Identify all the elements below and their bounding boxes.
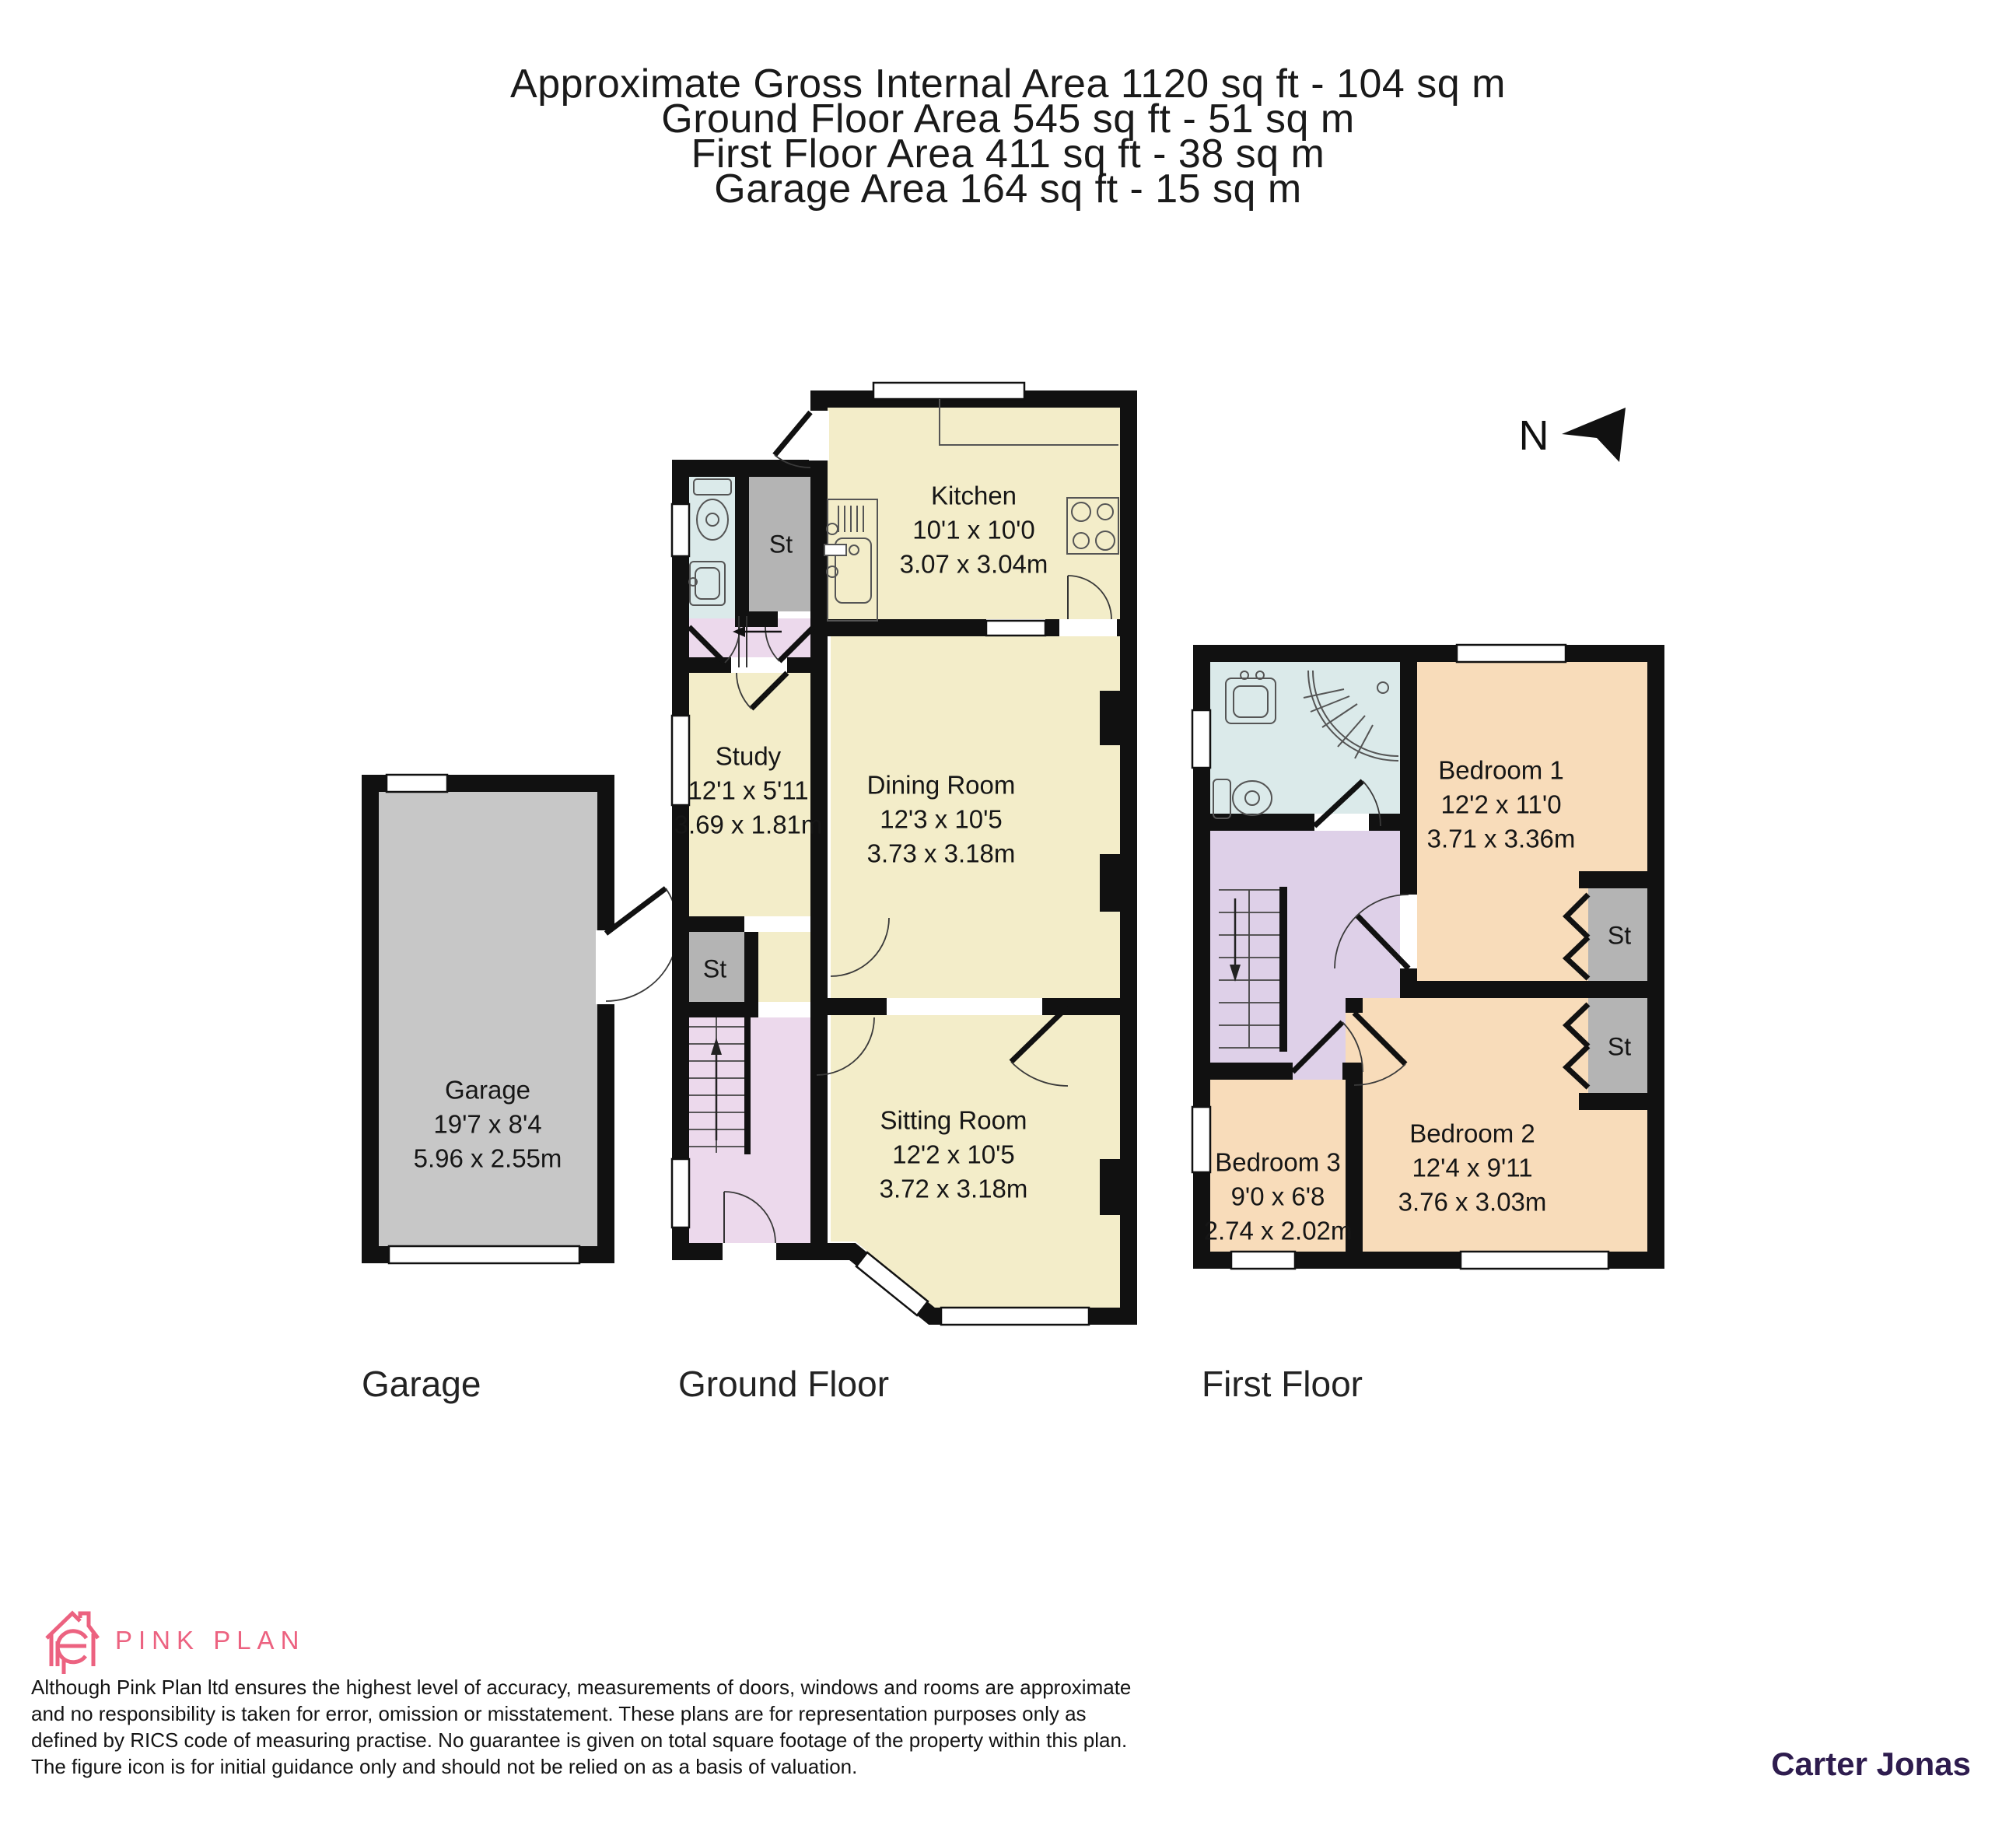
floorplan-canvas: Garage 19'7 x 8'4 5.96 x 2.55m xyxy=(0,0,2016,1828)
storage-label: St xyxy=(1608,1032,1631,1060)
bedroom3-name: Bedroom 3 xyxy=(1215,1148,1340,1177)
bedroom1-window xyxy=(1457,645,1566,662)
study-name: Study xyxy=(716,742,782,771)
chimney-pillar xyxy=(1100,1159,1120,1215)
area-summary: Approximate Gross Internal Area 1120 sq … xyxy=(0,67,2016,207)
stair-hall-area xyxy=(689,1017,814,1243)
dining-dims-m: 3.73 x 3.18m xyxy=(867,839,1016,868)
bedroom3-window xyxy=(1231,1252,1295,1269)
bedroom2-dims-m: 3.76 x 3.03m xyxy=(1398,1188,1547,1217)
storage-label: St xyxy=(1608,921,1631,949)
bedroom2-name: Bedroom 2 xyxy=(1409,1119,1535,1148)
storage-label: St xyxy=(769,530,793,558)
garage-room-dims-m: 5.96 x 2.55m xyxy=(414,1144,562,1173)
bathroom-area xyxy=(1210,662,1400,814)
bedroom1-dims-m: 3.71 x 3.36m xyxy=(1427,825,1576,853)
bedroom3-dims-m: 2.74 x 2.02m xyxy=(1204,1217,1353,1245)
chimney-pillar xyxy=(1100,691,1120,745)
north-arrow-icon: N xyxy=(1519,408,1626,462)
pink-plan-logo-text: PINK PLAN xyxy=(115,1626,305,1655)
bay-window-front xyxy=(941,1308,1089,1325)
garage-plan: Garage 19'7 x 8'4 5.96 x 2.55m xyxy=(370,775,678,1263)
bedroom3-dims-ft: 9'0 x 6'8 xyxy=(1231,1182,1325,1211)
bedroom1-dims-ft: 12'2 x 11'0 xyxy=(1440,790,1561,819)
kitchen-dims-m: 3.07 x 3.04m xyxy=(900,550,1048,579)
kitchen-window xyxy=(873,383,1024,399)
garage-room-name: Garage xyxy=(445,1076,530,1105)
garage-room-area xyxy=(379,792,597,1246)
hall-window xyxy=(672,1159,689,1227)
storage-label: St xyxy=(703,954,726,982)
ground-floor-title: Ground Floor xyxy=(678,1364,889,1404)
garage-floor-title: Garage xyxy=(362,1364,481,1404)
first-floor-plan: Bedroom 1 12'2 x 11'0 3.71 x 3.36m St St… xyxy=(1192,645,1656,1269)
bedroom2-window xyxy=(1461,1252,1608,1269)
bedroom1-name: Bedroom 1 xyxy=(1438,756,1563,785)
garage-room-dims-ft: 19'7 x 8'4 xyxy=(433,1110,541,1139)
study-dims-m: 3.69 x 1.81m xyxy=(674,811,823,839)
dining-name: Dining Room xyxy=(867,771,1016,800)
landing-window xyxy=(1192,1107,1210,1172)
study-dims-ft: 12'1 x 5'11 xyxy=(688,776,808,805)
kitchen-name: Kitchen xyxy=(931,482,1017,510)
study-window xyxy=(672,716,689,805)
kitchen-dims-ft: 10'1 x 10'0 xyxy=(912,516,1035,545)
kitchen-hatch-window xyxy=(986,621,1045,636)
pink-plan-logo-icon xyxy=(47,1613,98,1674)
bedroom2-dims-ft: 12'4 x 9'11 xyxy=(1412,1154,1532,1182)
dining-dims-ft: 12'3 x 10'5 xyxy=(880,805,1003,834)
sitting-dims-m: 3.72 x 3.18m xyxy=(880,1175,1028,1203)
first-floor-title: First Floor xyxy=(1202,1364,1363,1404)
carter-jonas-brand: Carter Jonas xyxy=(1771,1746,1971,1783)
garage-area-line: Garage Area 164 sq ft - 15 sq m xyxy=(0,172,2016,207)
bathroom-window xyxy=(1192,710,1210,768)
garage-window-top xyxy=(387,775,447,792)
wc-window xyxy=(672,504,689,556)
ground-floor-plan: Kitchen 10'1 x 10'0 3.07 x 3.04m St Stud… xyxy=(672,383,1137,1325)
disclaimer-text: Although Pink Plan ltd ensures the highe… xyxy=(31,1674,1155,1780)
sitting-name: Sitting Room xyxy=(880,1106,1027,1135)
chimney-pillar xyxy=(1100,854,1120,912)
north-label: N xyxy=(1519,412,1549,459)
passage-area xyxy=(758,932,810,1002)
garage-window-bottom xyxy=(389,1246,579,1263)
sitting-dims-ft: 12'2 x 10'5 xyxy=(892,1140,1015,1169)
